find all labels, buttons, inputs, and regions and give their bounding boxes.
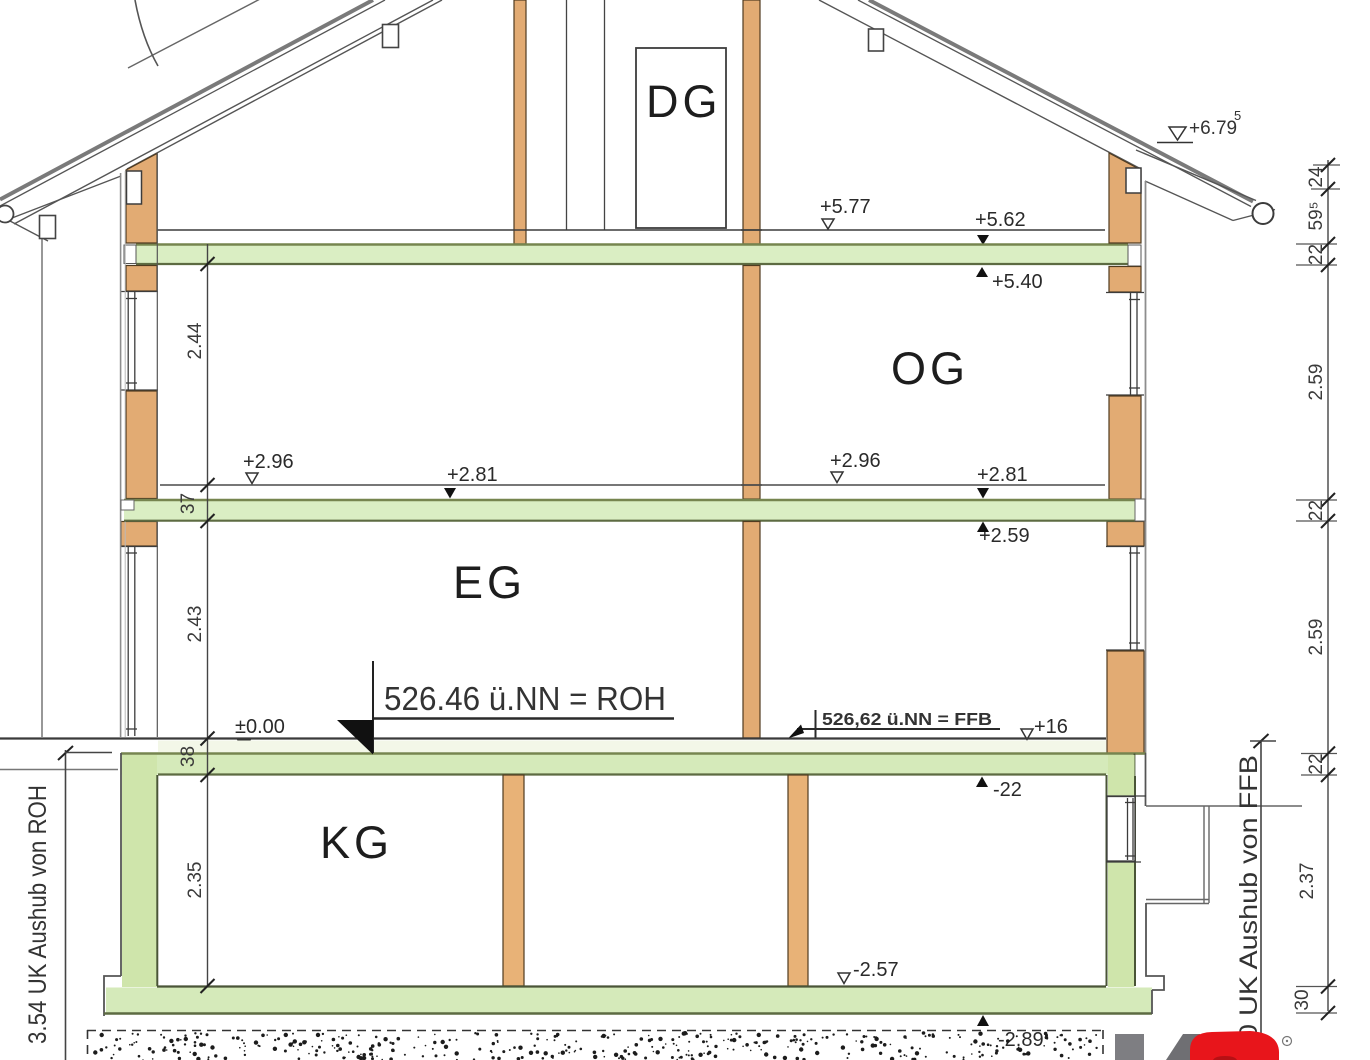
svg-text:526.46 ü.NN = ROH: 526.46 ü.NN = ROH — [384, 680, 666, 717]
svg-text:2.44: 2.44 — [185, 322, 206, 359]
svg-text:59⁵: 59⁵ — [1306, 201, 1327, 230]
svg-text:2.43: 2.43 — [185, 606, 206, 643]
svg-text:-2.57: -2.57 — [853, 959, 899, 981]
svg-text:+16: +16 — [1034, 716, 1068, 738]
svg-text:-22: -22 — [993, 779, 1022, 801]
svg-text:30: 30 — [1292, 989, 1313, 1010]
svg-text:DG: DG — [646, 76, 722, 127]
svg-text:526,62 ü.NN = FFB: 526,62 ü.NN = FFB — [822, 709, 992, 729]
svg-text:+2.96: +2.96 — [243, 451, 294, 473]
svg-text:EG: EG — [453, 557, 526, 608]
svg-text:+2.96: +2.96 — [830, 450, 881, 472]
svg-text:22: 22 — [1306, 753, 1327, 774]
svg-text:22: 22 — [1306, 500, 1327, 521]
svg-text:+2.81: +2.81 — [977, 464, 1028, 486]
svg-text:+5.77: +5.77 — [820, 196, 871, 218]
svg-text:-2.89: -2.89 — [998, 1029, 1044, 1051]
svg-text:3.54 UK Aushub von ROH: 3.54 UK Aushub von ROH — [24, 785, 52, 1044]
svg-text:+6.79: +6.79 — [1189, 118, 1237, 139]
svg-text:±0.00: ±0.00 — [235, 716, 285, 738]
svg-text:2.37: 2.37 — [1297, 863, 1318, 900]
svg-text:37: 37 — [178, 493, 199, 514]
svg-text:0 UK Aushub von FFB: 0 UK Aushub von FFB — [1235, 755, 1263, 1040]
svg-text:+2.81: +2.81 — [447, 464, 498, 486]
svg-text:2.59: 2.59 — [1306, 619, 1327, 656]
svg-text:22: 22 — [1306, 244, 1327, 265]
svg-text:2.59: 2.59 — [1306, 364, 1327, 401]
svg-text:+5.40: +5.40 — [992, 271, 1043, 293]
svg-text:5: 5 — [1234, 108, 1241, 123]
svg-text:OG: OG — [891, 343, 969, 394]
svg-text:24: 24 — [1306, 166, 1327, 188]
svg-text:38: 38 — [178, 746, 199, 767]
svg-text:2.35: 2.35 — [185, 862, 206, 899]
svg-text:+5.62: +5.62 — [975, 209, 1026, 231]
svg-text:KG: KG — [320, 817, 393, 868]
